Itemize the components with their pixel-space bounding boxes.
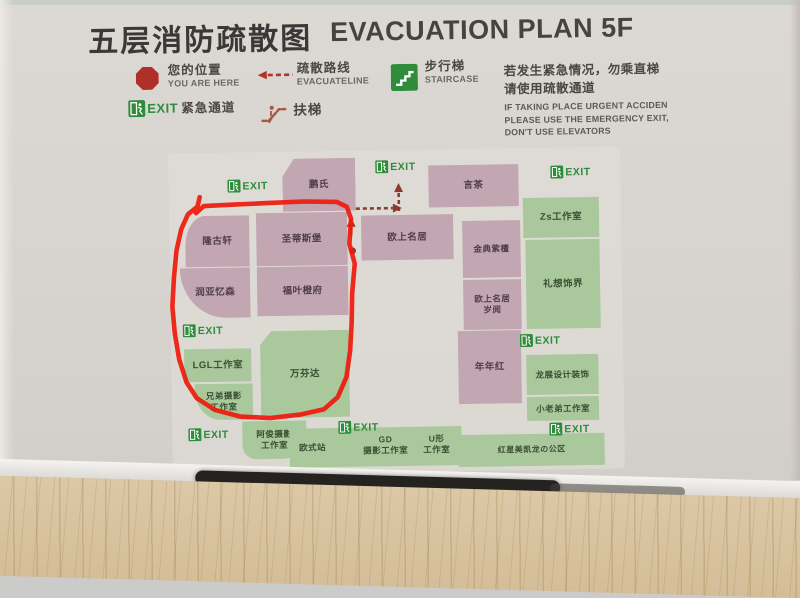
label-oushizhan: 欧式站	[290, 439, 334, 456]
legend-emergency-exit-label: 紧急通道	[181, 102, 235, 117]
board-top-edge	[0, 0, 800, 5]
room-pengshi: 鹏氏	[282, 158, 356, 212]
exit-badge-mid-right: EXIT	[520, 333, 561, 347]
room-oushang-suiyue: 欧上名居 岁阅	[463, 279, 522, 330]
label-gd-photo: GD 摄影工作室	[354, 429, 416, 462]
board-left-edge	[0, 0, 14, 480]
exit-run-icon	[550, 165, 563, 178]
board-right-edge	[790, 0, 800, 480]
legend-you-are-here: 您的位置 YOU ARE HERE	[168, 63, 240, 88]
exit-run-icon	[549, 422, 562, 435]
wall-below-sign	[0, 458, 800, 598]
photo-frame: 五层消防疏散图 EVACUATION PLAN 5F 您的位置 YOU ARE …	[0, 0, 800, 598]
room-niannianhong: 年年红	[458, 330, 522, 404]
room-zs-studio: Zs工作室	[523, 197, 600, 238]
room-longguxuan: 隆古轩	[185, 215, 250, 267]
exit-badge-top-left: EXIT	[227, 179, 268, 193]
legend-staircase: 步行梯 STAIRCASE	[425, 60, 479, 85]
exit-badge-top-center: EXIT	[375, 160, 416, 174]
exit-run-icon	[183, 324, 196, 337]
exit-run-icon	[375, 160, 388, 173]
exit-badge-bottom-right: EXIT	[549, 422, 590, 436]
exit-badge-bottom-center: EXIT	[338, 420, 379, 434]
staircase-icon	[391, 64, 418, 91]
sign-title-en: EVACUATION PLAN 5F	[330, 12, 634, 48]
room-lgl-studio: LGL工作室	[184, 348, 252, 382]
exit-run-icon	[188, 428, 201, 441]
exit-run-icon	[227, 179, 240, 192]
escalator-icon	[260, 102, 287, 125]
exit-run-icon	[128, 100, 145, 117]
exit-run-icon	[338, 421, 351, 434]
you-are-here-icon	[136, 67, 159, 90]
room-longzhan-design: 龙展设计装饰	[526, 354, 599, 395]
exit-badge-mid-left: EXIT	[183, 324, 224, 338]
room-lixiang-shijie: 礼想饰界	[525, 239, 600, 329]
legend-emergency-exit: EXIT	[128, 99, 178, 117]
room-yancha: 言茶	[428, 164, 519, 207]
room-oushangmingju: 欧上名居	[361, 214, 454, 260]
warning-text: 若发生紧急情况，勿乘直梯 请使用疏散通道 IF TAKING PLACE URG…	[504, 59, 690, 138]
label-u-studio: U形 工作室	[414, 428, 458, 461]
evacuate-line-icon	[258, 70, 294, 81]
sign-title-zh: 五层消防疏散图	[88, 13, 313, 61]
room-jindianzitan: 金典紫檀	[462, 220, 521, 278]
room-wanfenda: 万芬达	[260, 330, 350, 418]
room-xiaolaodi-studio: 小老弟工作室	[527, 396, 599, 421]
room-fuyechengfu: 福叶橙府	[257, 266, 349, 316]
room-shengdisibao: 圣蒂斯堡	[256, 212, 348, 266]
exit-run-icon	[520, 334, 533, 347]
exit-badge-bottom-left: EXIT	[188, 428, 229, 442]
room-hongxing: 红星美凯龙の公区	[458, 433, 604, 467]
exit-badge-top-right: EXIT	[550, 165, 591, 179]
legend-evacuate-line: 疏散路线 EVACUATELINE	[297, 61, 370, 86]
legend-escalator-label: 扶梯	[293, 103, 322, 118]
